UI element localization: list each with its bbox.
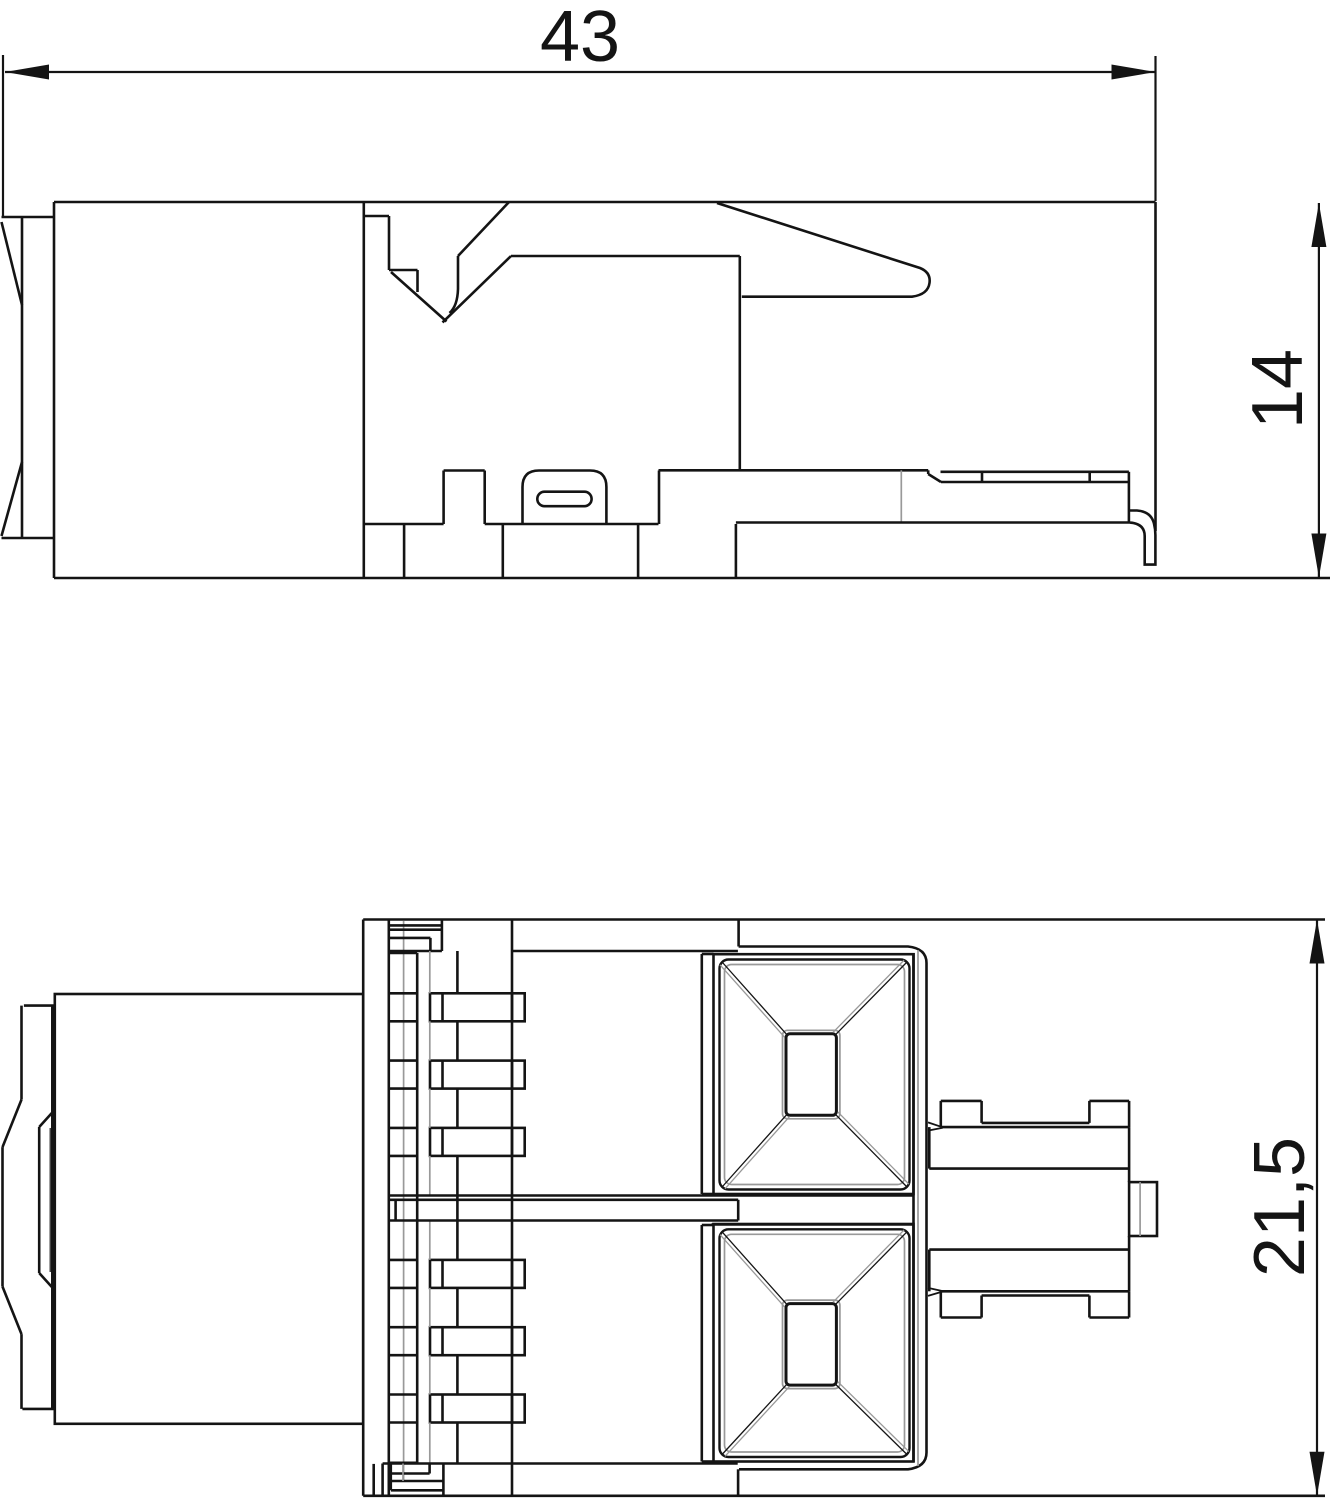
svg-text:14: 14 — [1238, 349, 1318, 429]
svg-text:43: 43 — [540, 0, 620, 77]
svg-text:21,5: 21,5 — [1240, 1137, 1320, 1277]
